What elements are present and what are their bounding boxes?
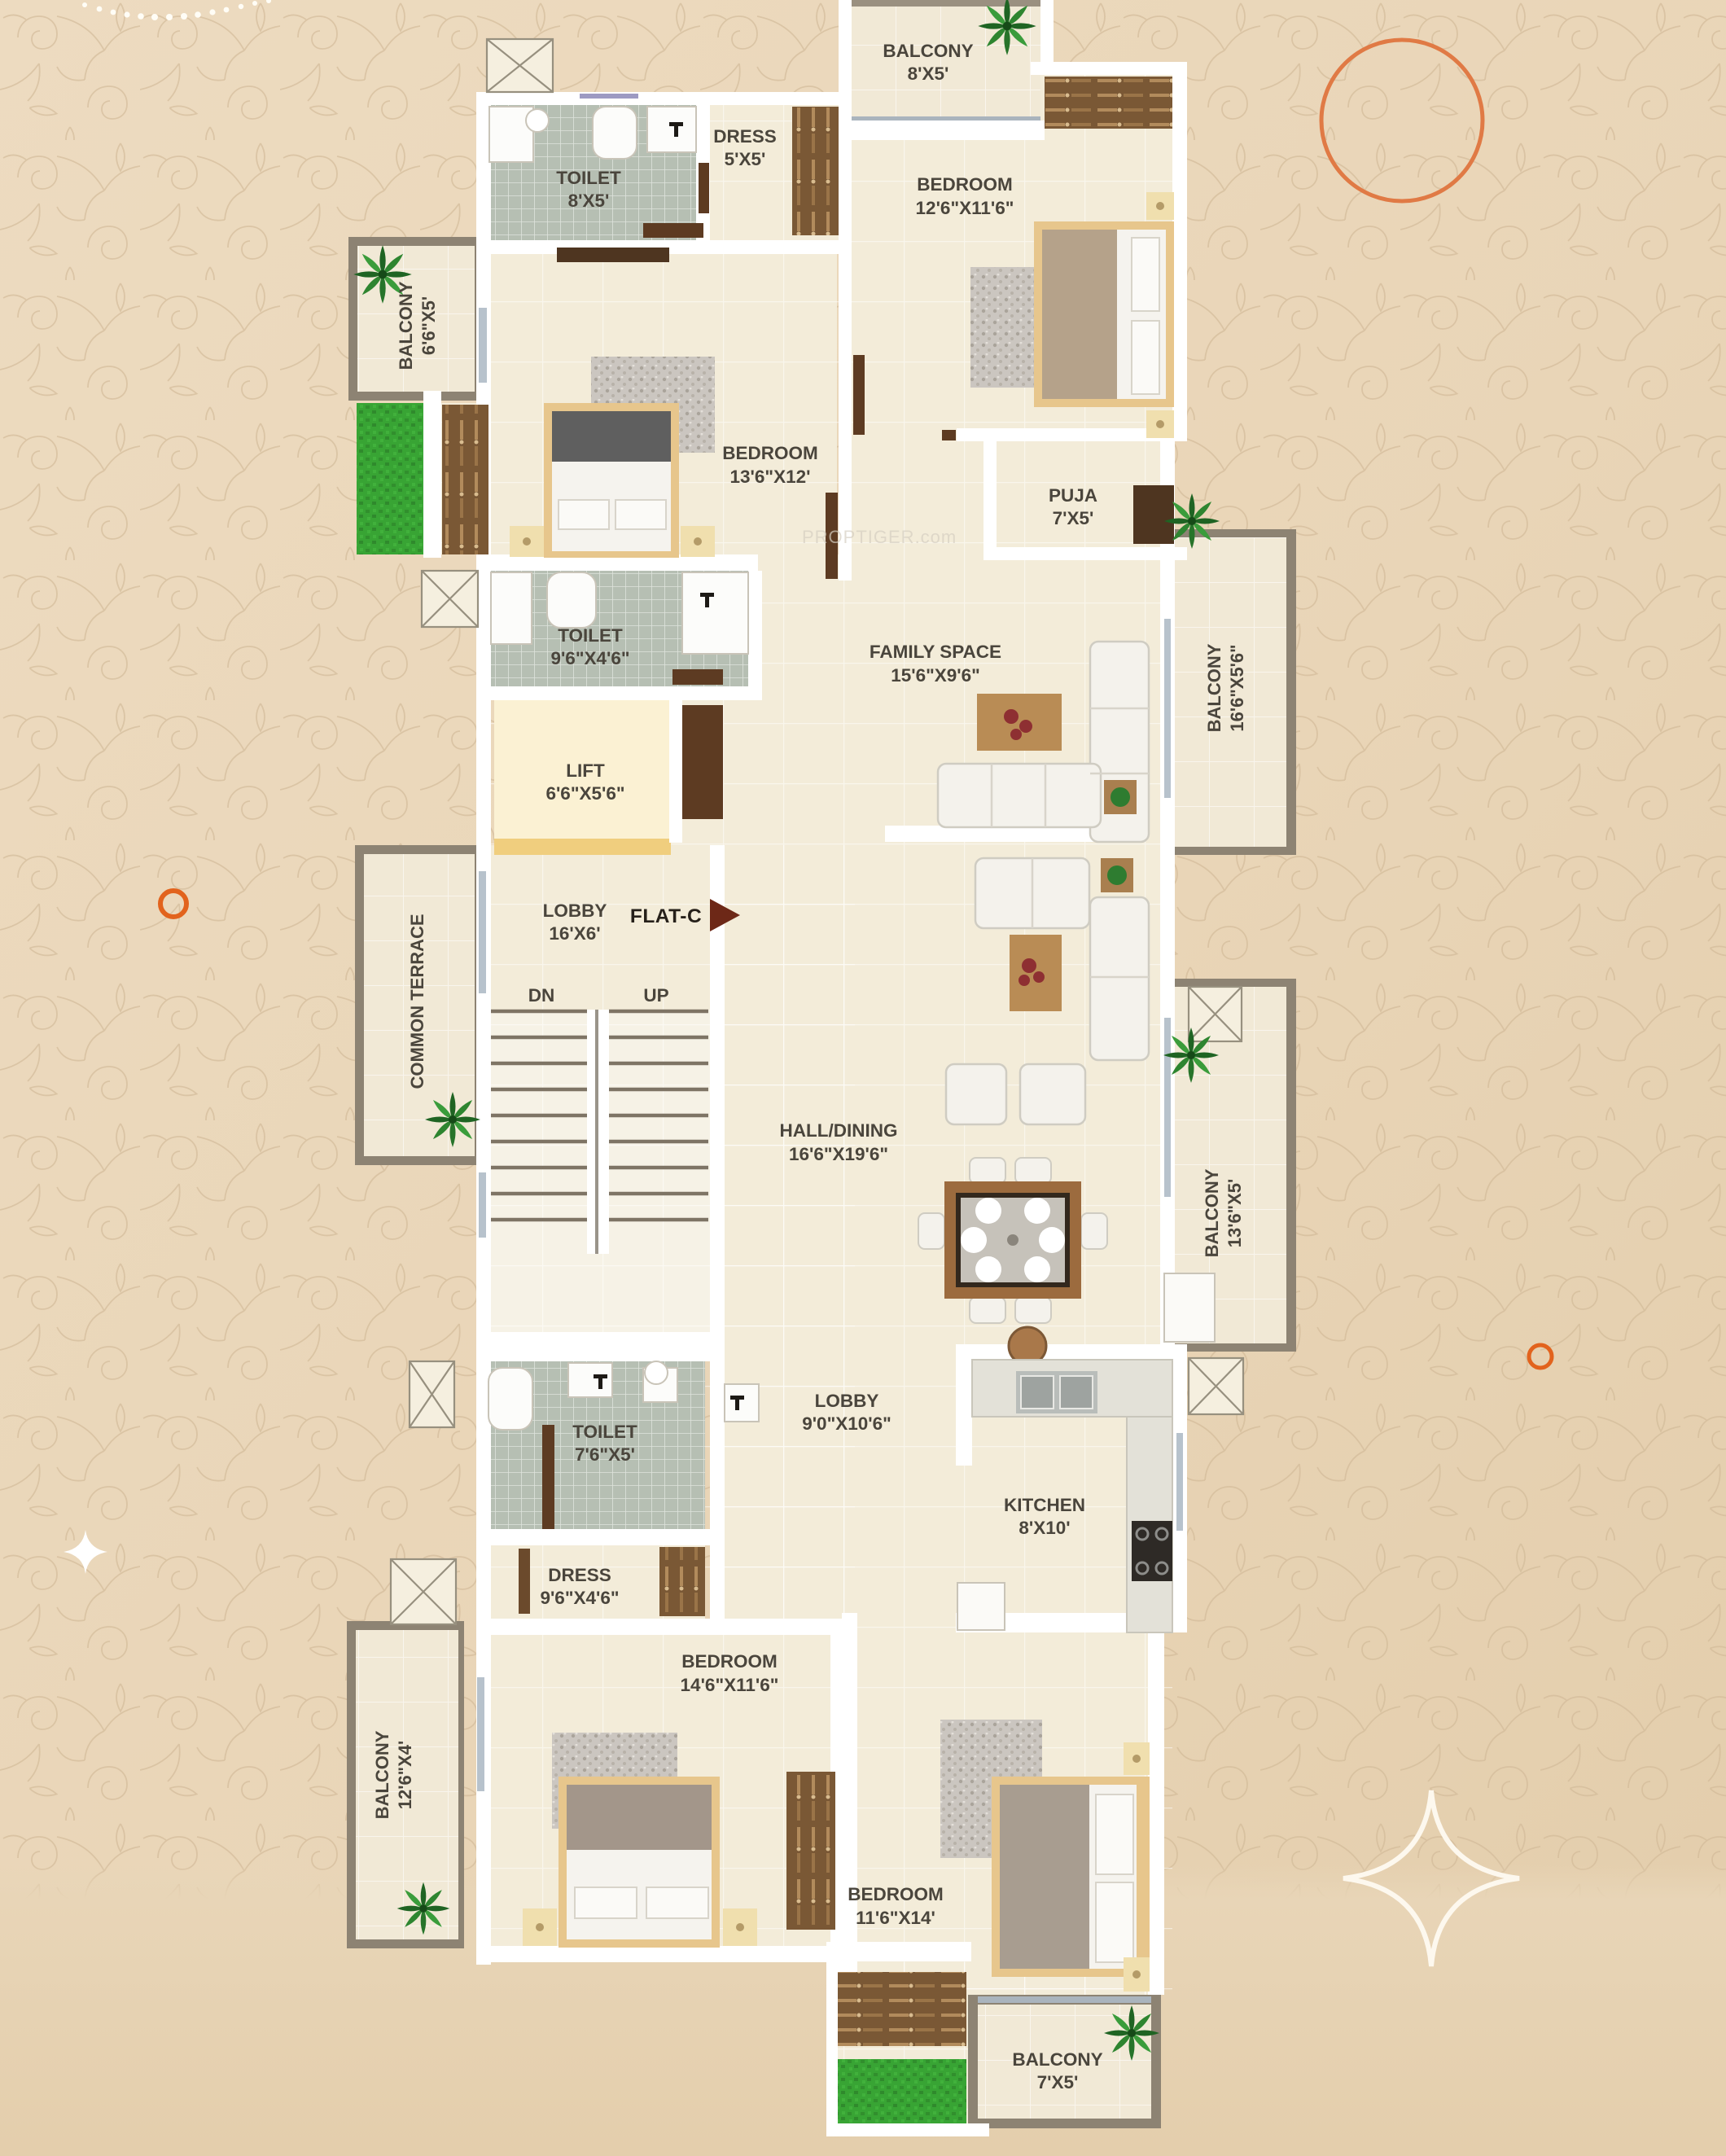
svg-text:PUJA: PUJA — [1049, 485, 1097, 506]
svg-text:BALCONY: BALCONY — [1204, 643, 1224, 732]
svg-text:BALCONY: BALCONY — [1202, 1168, 1222, 1257]
svg-text:BALCONY: BALCONY — [396, 281, 416, 370]
svg-text:8'X5': 8'X5' — [908, 64, 949, 84]
svg-text:DRESS: DRESS — [548, 1565, 611, 1585]
svg-text:TOILET: TOILET — [556, 168, 621, 188]
svg-text:BEDROOM: BEDROOM — [681, 1651, 778, 1672]
svg-text:BALCONY: BALCONY — [883, 41, 973, 61]
svg-text:12'6"X11'6": 12'6"X11'6" — [916, 198, 1014, 218]
svg-text:BEDROOM: BEDROOM — [848, 1884, 944, 1904]
svg-text:HALL/DINING: HALL/DINING — [780, 1120, 898, 1141]
svg-text:9'6"X4'6": 9'6"X4'6" — [550, 648, 629, 668]
svg-text:14'6"X11'6": 14'6"X11'6" — [681, 1675, 779, 1695]
svg-text:11'6"X14': 11'6"X14' — [856, 1908, 935, 1928]
svg-text:FAMILY SPACE: FAMILY SPACE — [870, 642, 1001, 662]
svg-text:LOBBY: LOBBY — [815, 1391, 879, 1411]
svg-text:15'6"X9'6": 15'6"X9'6" — [891, 665, 980, 686]
svg-text:LIFT: LIFT — [566, 760, 605, 781]
svg-text:5'X5': 5'X5' — [725, 149, 766, 169]
svg-text:13'6"X12': 13'6"X12' — [730, 467, 811, 487]
svg-text:16'6"X19'6": 16'6"X19'6" — [789, 1144, 888, 1164]
svg-text:16'6"X5'6": 16'6"X5'6" — [1227, 644, 1247, 731]
svg-text:9'6"X4'6": 9'6"X4'6" — [540, 1588, 619, 1608]
svg-text:7'X5': 7'X5' — [1037, 2072, 1079, 2092]
svg-text:BEDROOM: BEDROOM — [722, 443, 818, 463]
svg-text:KITCHEN: KITCHEN — [1004, 1495, 1085, 1515]
svg-text:TOILET: TOILET — [558, 625, 623, 646]
svg-text:LOBBY: LOBBY — [543, 901, 607, 921]
svg-text:COMMON TERRACE: COMMON TERRACE — [407, 914, 427, 1089]
svg-text:16'X6': 16'X6' — [549, 923, 600, 944]
svg-text:TOILET: TOILET — [572, 1422, 637, 1442]
svg-text:8'X5': 8'X5' — [568, 191, 610, 211]
svg-text:FLAT-C: FLAT-C — [630, 905, 702, 927]
svg-text:7'X5': 7'X5' — [1053, 508, 1094, 528]
svg-text:PROPTIGER.com: PROPTIGER.com — [802, 527, 957, 547]
svg-text:DN: DN — [528, 985, 555, 1006]
svg-text:7'6"X5': 7'6"X5' — [575, 1444, 635, 1465]
svg-text:6'6"X5'6": 6'6"X5'6" — [545, 783, 624, 804]
svg-text:BALCONY: BALCONY — [1012, 2049, 1102, 2070]
svg-text:BALCONY: BALCONY — [372, 1730, 392, 1819]
svg-text:6'6"X5': 6'6"X5' — [418, 296, 439, 355]
svg-text:9'0"X10'6": 9'0"X10'6" — [802, 1413, 891, 1434]
svg-text:13'6"X5': 13'6"X5' — [1224, 1179, 1245, 1248]
svg-text:DRESS: DRESS — [713, 126, 777, 147]
svg-text:8'X10': 8'X10' — [1019, 1518, 1070, 1538]
svg-text:BEDROOM: BEDROOM — [917, 174, 1013, 195]
svg-text:12'6"X4': 12'6"X4' — [395, 1741, 415, 1810]
svg-text:UP: UP — [643, 985, 668, 1006]
